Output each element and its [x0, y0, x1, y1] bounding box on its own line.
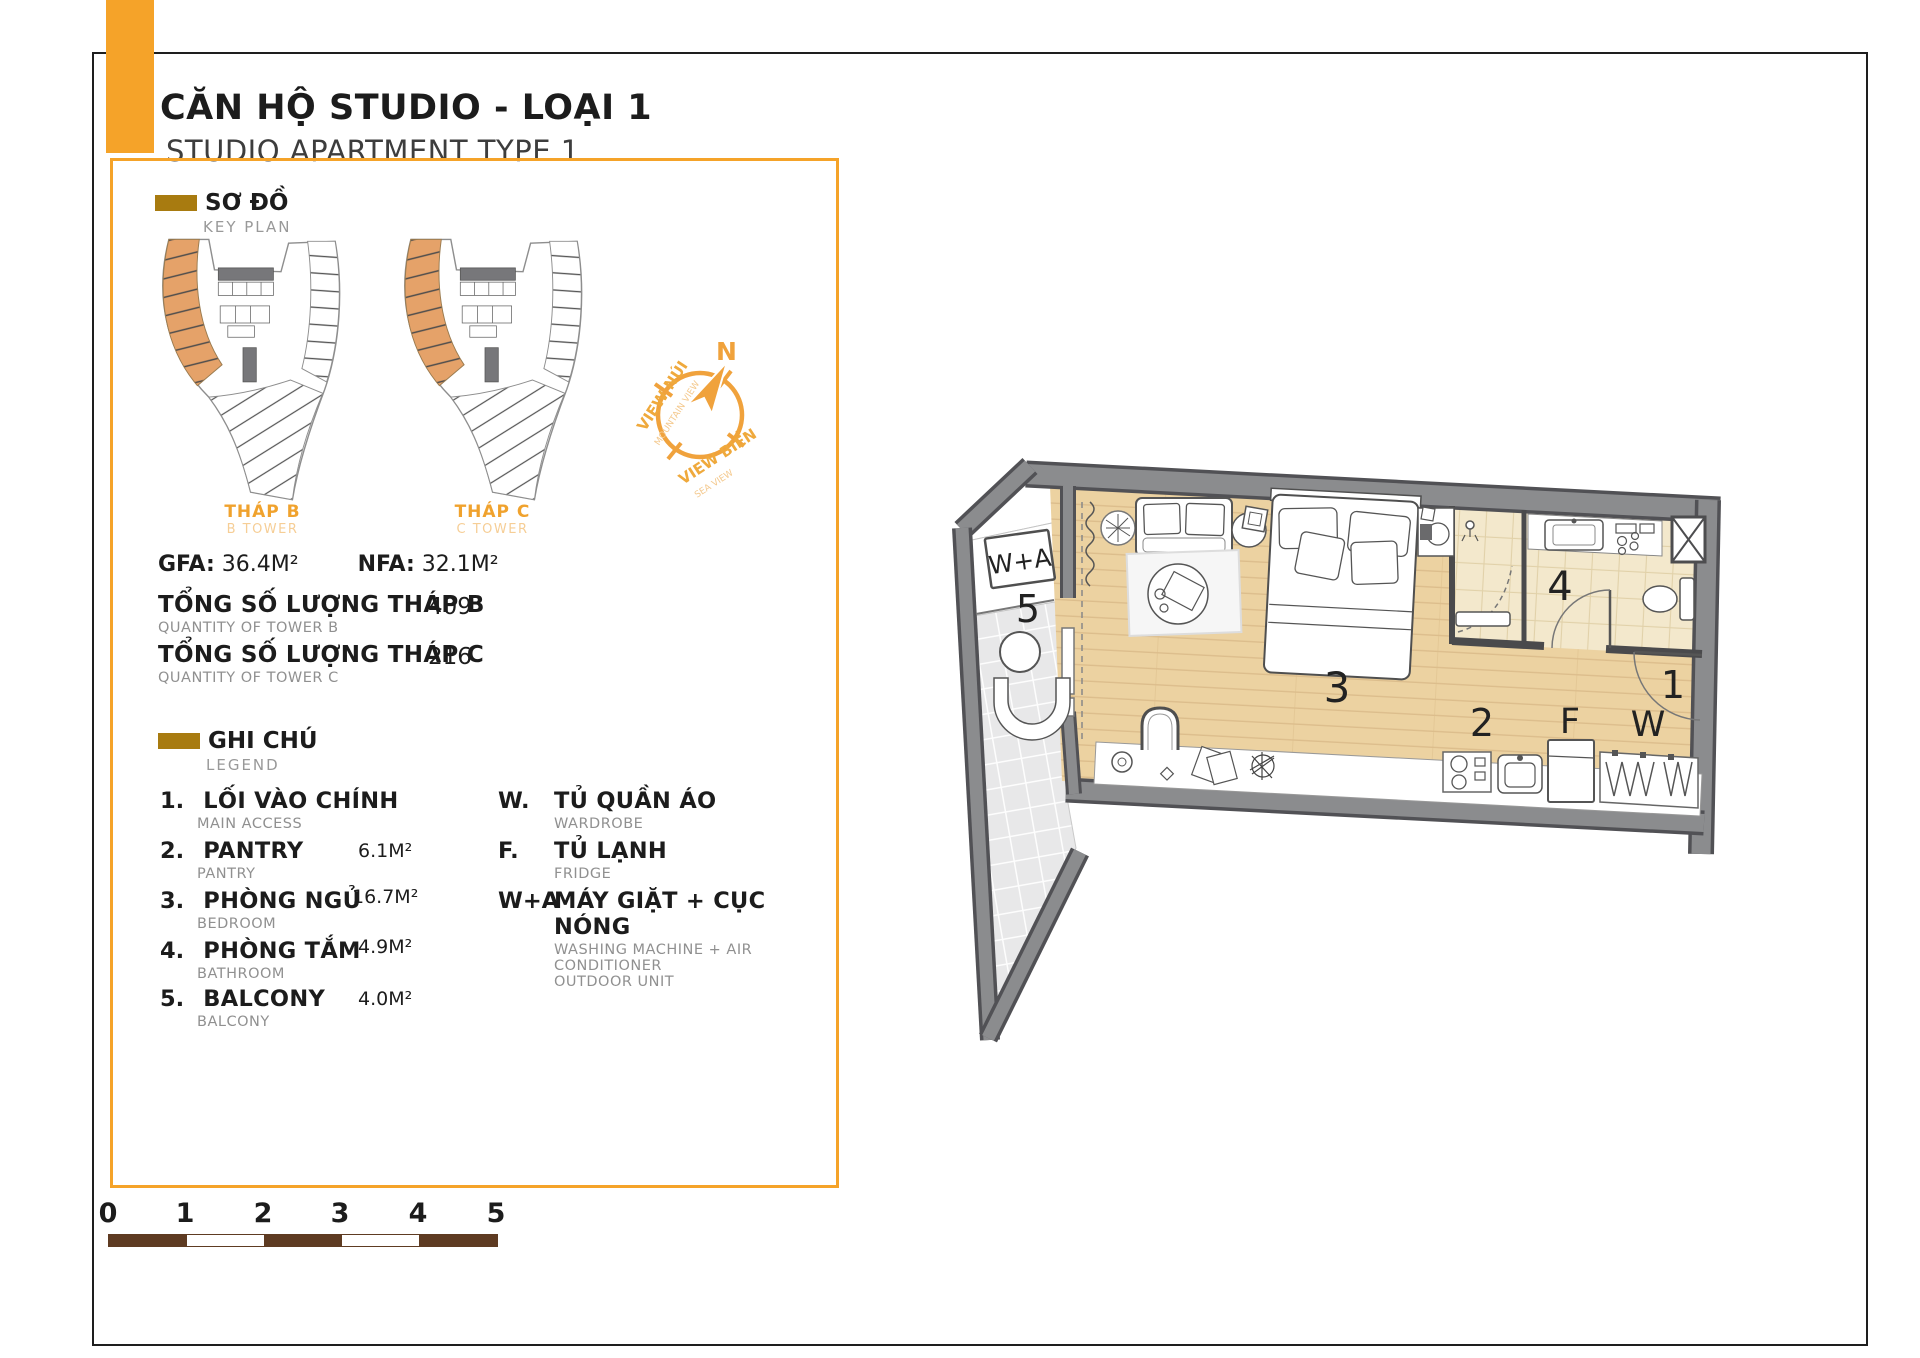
legend-name-vi: BALCONY — [203, 986, 325, 1012]
area-stats: GFA: 36.4M² NFA: 32.1M² — [158, 552, 499, 577]
legend-swatch — [158, 733, 200, 749]
legend-name-vi: PHÒNG NGỦ — [203, 888, 361, 914]
tower-b-keyplan — [163, 239, 340, 499]
legend-area-2: 6.1M² — [358, 840, 412, 862]
technical-shaft — [1672, 517, 1705, 562]
plan-label-bath: 4 — [1547, 564, 1572, 610]
legend-item-5: 5. BALCONY BALCONY — [160, 986, 325, 1030]
legend-key: F. — [498, 838, 519, 864]
legend-key: W. — [498, 788, 530, 814]
legend-area-5: 4.0M² — [358, 988, 412, 1010]
nightstand — [1418, 507, 1454, 556]
scale-segment — [342, 1235, 420, 1246]
legend-name-vi: PANTRY — [203, 838, 303, 864]
bed — [1262, 488, 1421, 680]
tower-c-name-vi: THÁP C — [420, 502, 565, 522]
legend-title-en: LEGEND — [206, 756, 280, 774]
scale-bar: 0 1 2 3 4 5 — [108, 1198, 528, 1258]
scale-tick: 0 — [78, 1198, 138, 1229]
scale-tick: 5 — [466, 1198, 526, 1229]
legend-item-f: F. TỦ LẠNH FRIDGE — [498, 838, 667, 882]
legend-item-1: 1. LỐI VÀO CHÍNH MAIN ACCESS — [160, 788, 399, 832]
plan-label-bedroom: 3 — [1324, 663, 1351, 712]
legend-name-en: FRIDGE — [554, 866, 667, 882]
plan-label-entry: 1 — [1661, 663, 1685, 707]
tower-c-name-en: C TOWER — [420, 522, 565, 537]
qty-c-en: QUANTITY OF TOWER C — [158, 670, 484, 686]
legend-name-en: MAIN ACCESS — [197, 816, 399, 832]
desk-chair — [1142, 708, 1178, 750]
plan-label-balcony: 5 — [1016, 587, 1040, 631]
stove — [1443, 752, 1491, 792]
qty-b-value: 409 — [428, 594, 472, 620]
scale-tick: 3 — [310, 1198, 370, 1229]
gfa-label: GFA: — [158, 552, 215, 577]
legend-key: 4. — [160, 938, 184, 964]
legend-item-3: 3. PHÒNG NGỦ BEDROOM — [160, 888, 361, 932]
plan-label-pantry: 2 — [1470, 701, 1494, 745]
plan-label-wardrobe: W — [1631, 705, 1666, 745]
scale-segment — [187, 1235, 265, 1246]
scale-segment — [264, 1235, 342, 1246]
legend-name-vi: LỐI VÀO CHÍNH — [203, 788, 398, 814]
tower-c-keyplan — [405, 239, 582, 499]
qty-b-en: QUANTITY OF TOWER B — [158, 620, 485, 636]
legend-name-en: BEDROOM — [197, 916, 361, 932]
plan-label-fridge: F — [1560, 702, 1580, 742]
tower-b-label: THÁP B B TOWER — [190, 502, 335, 537]
legend-area-4: 4.9M² — [358, 936, 412, 958]
fridge — [1548, 740, 1594, 802]
nfa-label: NFA: — [358, 552, 415, 577]
gfa-value: 36.4M² — [222, 552, 299, 577]
balcony-table — [1000, 632, 1040, 672]
scale-segment — [109, 1235, 187, 1246]
rug-and-table — [1127, 550, 1242, 636]
scale-bar-segments — [108, 1234, 498, 1247]
legend-item-w: W. TỦ QUẦN ÁO WARDROBE — [498, 788, 716, 832]
tower-c-label: THÁP C C TOWER — [420, 502, 565, 537]
legend-name-vi: MÁY GIẶT + CỤC NÓNG — [554, 888, 765, 940]
legend-key: 5. — [160, 986, 184, 1012]
keyplan-heading: SƠ ĐỒ — [155, 190, 289, 216]
scale-tick: 2 — [233, 1198, 293, 1229]
wardrobe — [1600, 750, 1698, 808]
legend-key: 3. — [160, 888, 184, 914]
compass: N VIEW NÚI MOUNTAIN VIEW VIEW BIỂN SEA V… — [598, 298, 813, 518]
kitchen-sink — [1498, 755, 1542, 793]
scale-segment — [419, 1235, 497, 1246]
legend-item-wa: W+A MÁY GIẶT + CỤC NÓNG WASHING MACHINE … — [498, 888, 844, 990]
legend-name-en: WASHING MACHINE + AIR CONDITIONER — [554, 942, 844, 974]
keyplan-swatch — [155, 195, 197, 211]
legend-name-vi: TỦ QUẦN ÁO — [554, 788, 716, 814]
legend-name-vi: PHÒNG TẮM — [203, 938, 360, 964]
legend-name-en: BATHROOM — [197, 966, 361, 982]
tower-b-name-en: B TOWER — [190, 522, 335, 537]
legend-key: 2. — [160, 838, 184, 864]
plant-by-sofa — [1101, 511, 1135, 545]
legend-heading: GHI CHÚ — [158, 728, 318, 754]
keyplan-title-vi: SƠ ĐỒ — [205, 190, 289, 216]
tower-b-name-vi: THÁP B — [190, 502, 335, 522]
legend-area-3: 16.7M² — [352, 886, 418, 908]
floor-plan: 5 W+A 3 4 1 2 F W — [940, 440, 1740, 1090]
legend-name-en: WARDROBE — [554, 816, 716, 832]
sofa — [1136, 498, 1232, 556]
shower-head-icon — [1466, 521, 1474, 529]
brochure-page: CĂN HỘ STUDIO - LOẠI 1 STUDIO APARTMENT … — [0, 0, 1920, 1358]
legend-key: 1. — [160, 788, 184, 814]
nfa-value: 32.1M² — [422, 552, 499, 577]
legend-title-vi: GHI CHÚ — [208, 728, 318, 754]
page-title: CĂN HỘ STUDIO - LOẠI 1 — [160, 88, 652, 128]
legend-key: W+A — [498, 888, 559, 914]
shower-bench — [1456, 612, 1510, 626]
scale-tick: 1 — [155, 1198, 215, 1229]
legend-item-2: 2. PANTRY PANTRY — [160, 838, 304, 882]
legend-name-en: PANTRY — [197, 866, 304, 882]
legend-item-4: 4. PHÒNG TẮM BATHROOM — [160, 938, 361, 982]
legend-name-vi: TỦ LẠNH — [554, 838, 667, 864]
legend-name-en: BALCONY — [197, 1014, 325, 1030]
qty-c-value: 216 — [428, 644, 472, 670]
accent-bar — [106, 0, 154, 153]
compass-north-label: N — [716, 337, 737, 366]
scale-tick: 4 — [388, 1198, 448, 1229]
legend-name-en2: OUTDOOR UNIT — [554, 974, 844, 990]
